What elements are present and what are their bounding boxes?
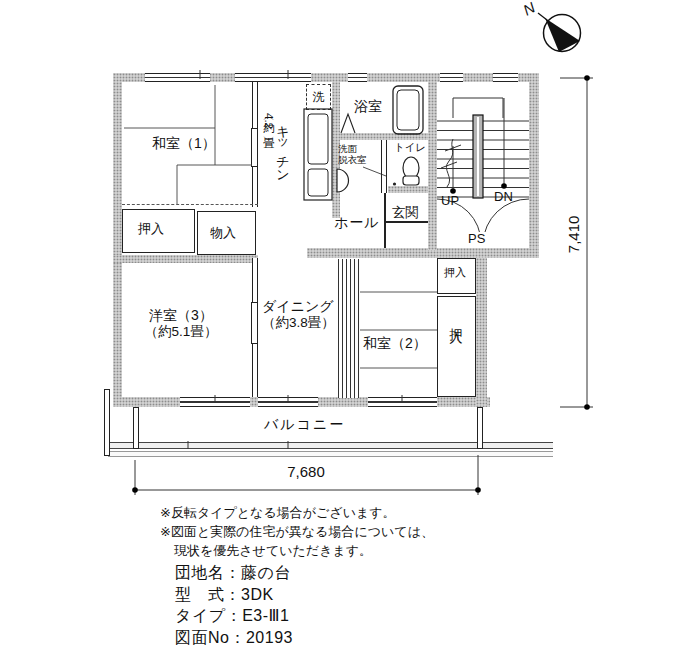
bath-door-icon — [341, 114, 355, 133]
label-hall: ホール — [334, 215, 380, 231]
kitchen-counter — [304, 109, 332, 200]
label-washroom-line1: 洗面 — [338, 143, 367, 154]
note-line-1: ※反転タイプとなる場合がございます。 — [160, 503, 434, 522]
label-up: UP — [441, 194, 459, 209]
notes-block: ※反転タイプとなる場合がございます。 ※図面と実際の住宅が異なる場合については、… — [160, 503, 434, 560]
note-line-2: ※図面と実際の住宅が異なる場合については、 — [160, 522, 434, 541]
label-balcony: バルコニー — [264, 417, 345, 433]
label-washroom: 洗面 脱衣室 — [338, 143, 367, 165]
label-oshiire-upper: 押入 — [444, 266, 466, 278]
info-drawing-no: 図面No：20193 — [175, 627, 293, 649]
label-yoshitsu3-name: 洋室（3） — [128, 308, 234, 324]
label-yoshitsu3-size: （約5.1畳） — [128, 324, 234, 339]
label-kitchen-name: キッチン — [275, 117, 290, 208]
label-bath: 浴室 — [354, 99, 382, 115]
toilet-icon — [393, 157, 419, 186]
floorplan: 洗 — [0, 0, 700, 650]
label-yoshitsu3: 洋室（3） （約5.1畳） — [128, 308, 234, 339]
label-toilet: トイレ — [394, 142, 426, 154]
sink-icon — [337, 167, 386, 192]
north-arrow-icon — [538, 13, 581, 52]
note-line-3: 現状を優先させていただきます。 — [160, 541, 434, 560]
window-ticks — [188, 70, 402, 449]
info-plan-type: タイプ：E3-Ⅲ1 — [175, 605, 293, 627]
label-washroom-line2: 脱衣室 — [338, 154, 367, 165]
info-layout-type: 型 式：3DK — [175, 584, 293, 606]
info-danchi-name: 団地名：藤の台 — [175, 562, 293, 584]
label-kitchen: キッチン （約4.2畳） — [262, 113, 289, 208]
label-dining-name: ダイニング — [262, 299, 335, 315]
label-kitchen-size: （約4.2畳） — [262, 113, 275, 208]
label-genkan: 玄関 — [392, 205, 419, 220]
label-washitsu2: 和室（2） — [362, 336, 428, 352]
label-dining-size: （約3.8畳） — [262, 315, 335, 330]
dimension-height: 7,410 — [566, 204, 583, 264]
info-block: 団地名：藤の台 型 式：3DK タイプ：E3-Ⅲ1 図面No：20193 — [175, 562, 293, 648]
staircase — [437, 98, 529, 243]
dimension-width: 7,680 — [266, 464, 346, 481]
tatami-lines-washitsu2 — [360, 292, 437, 368]
label-dining: ダイニング （約3.8畳） — [262, 299, 335, 330]
label-dn: DN — [494, 190, 513, 205]
label-washitsu1: 和室（1） — [152, 136, 216, 152]
label-monoire: 物入 — [210, 226, 236, 241]
label-oshiire-lower: 押入 — [448, 318, 463, 322]
fusuma-band — [338, 258, 359, 398]
label-oshiire-left: 押入 — [138, 222, 164, 237]
label-ps: PS — [466, 232, 487, 247]
